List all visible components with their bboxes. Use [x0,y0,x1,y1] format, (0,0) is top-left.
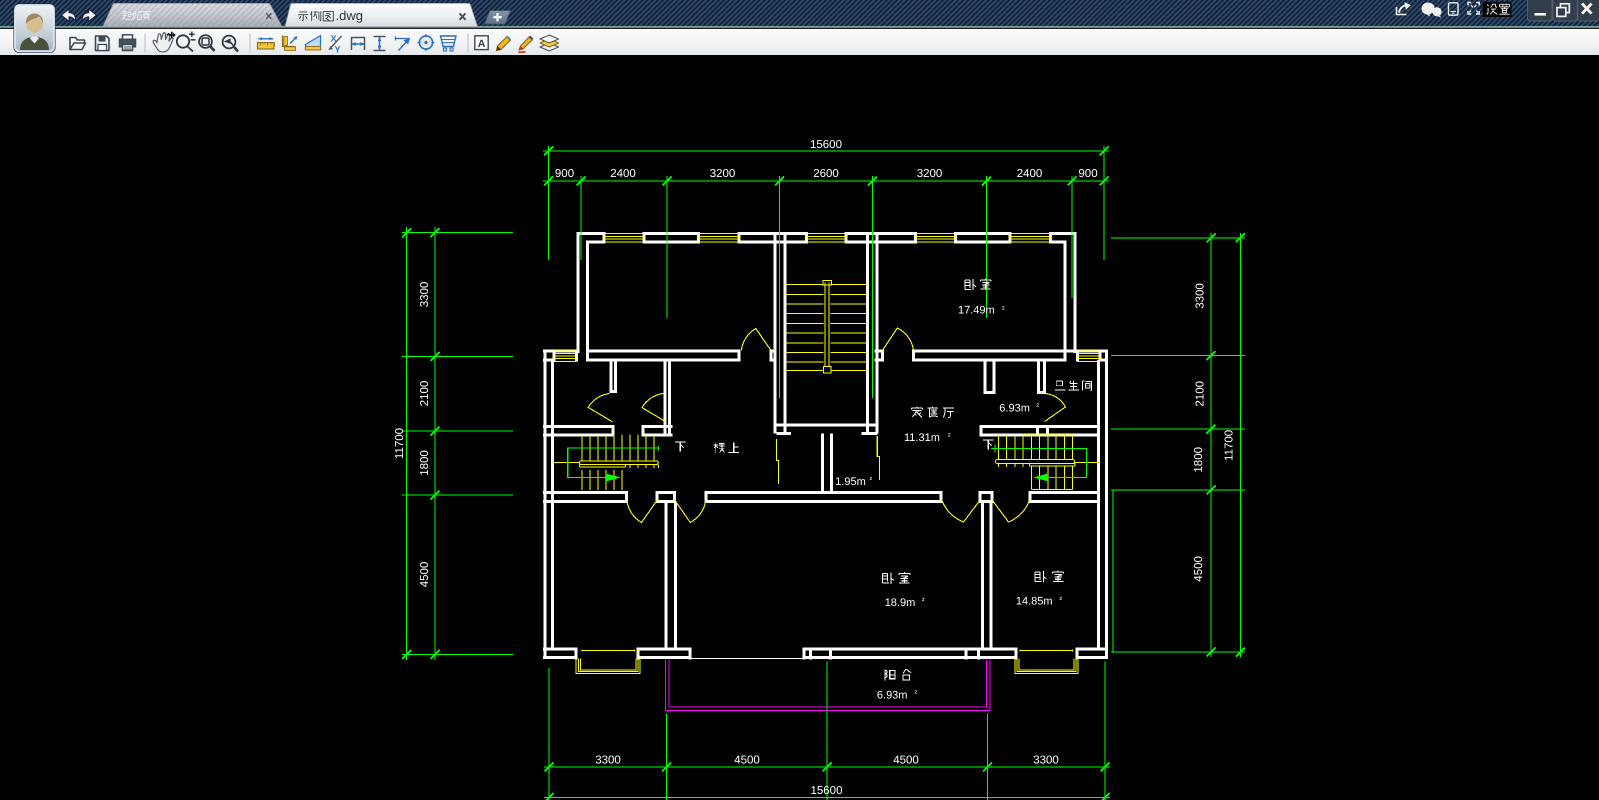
svg-text:11700: 11700 [394,428,406,459]
svg-text:1.95m: 1.95m [835,476,866,488]
svg-text:6.93m: 6.93m [877,690,908,702]
svg-text:.dwg: .dwg [336,8,363,23]
svg-text:2400: 2400 [610,168,636,180]
svg-text:4500: 4500 [734,755,760,767]
svg-text:3200: 3200 [917,168,943,180]
svg-text:14.85m: 14.85m [1016,596,1053,608]
svg-text:2100: 2100 [419,381,431,407]
svg-text:1800: 1800 [419,450,431,476]
svg-text:3200: 3200 [710,168,736,180]
svg-text:3300: 3300 [595,755,621,767]
svg-text:1800: 1800 [1193,447,1205,473]
svg-text:15600: 15600 [811,785,843,797]
svg-text:17.49m: 17.49m [958,305,995,317]
svg-text:A: A [478,38,486,50]
svg-text:4500: 4500 [1193,556,1205,582]
svg-text:4500: 4500 [419,562,431,588]
svg-text:18.9m: 18.9m [885,597,916,609]
svg-text:6.93m: 6.93m [999,402,1030,414]
svg-text:3300: 3300 [1033,755,1059,767]
svg-text:15600: 15600 [810,139,842,151]
svg-text:2100: 2100 [1195,381,1207,407]
svg-text:3300: 3300 [419,282,431,308]
svg-text:4500: 4500 [893,755,919,767]
svg-text:2600: 2600 [813,168,839,180]
svg-text:11.31m: 11.31m [904,432,940,444]
svg-text:2400: 2400 [1017,168,1043,180]
svg-text:3300: 3300 [1195,283,1207,309]
svg-text:900: 900 [555,168,574,180]
svg-text:11700: 11700 [1224,430,1236,461]
svg-text:Y: Y [335,45,341,55]
svg-text:900: 900 [1078,168,1097,180]
svg-text:X: X [331,34,337,44]
